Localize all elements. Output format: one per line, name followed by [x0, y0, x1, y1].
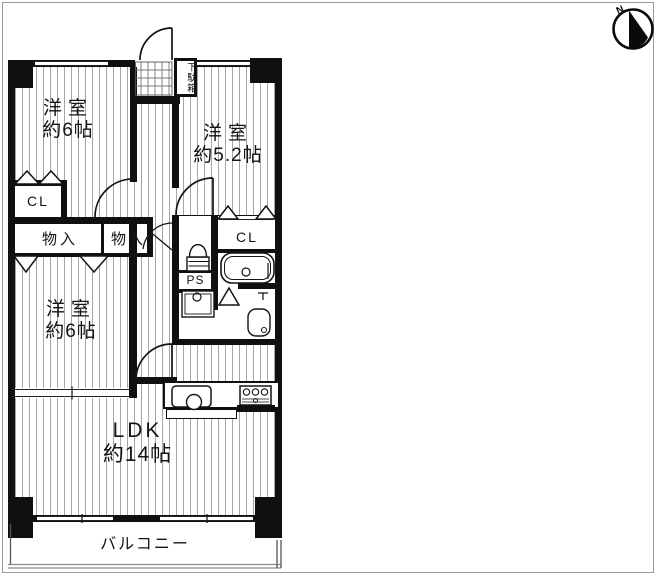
room-label-bedroom-top-right: 洋室 約5.2帖: [176, 123, 280, 167]
wall-segment: [238, 283, 282, 289]
wall-segment: [218, 249, 275, 253]
closet-label-left: CL: [15, 193, 61, 209]
room-name: LDK: [80, 419, 195, 443]
balcony-label: バルコニー: [95, 536, 195, 554]
entrance-step-edge: [133, 96, 180, 104]
room-label-bedroom-top-left: 洋室 約6帖: [16, 98, 120, 142]
wall-segment: [237, 405, 275, 412]
floor-plan-canvas: 洋室 約6帖 洋室 約5.2帖 洋室 約6帖 LDK 約14帖 バルコニー CL…: [0, 0, 656, 575]
wall-segment: [179, 289, 214, 293]
wall-segment: [12, 180, 67, 186]
room-label-ldk: LDK 約14帖: [80, 419, 195, 467]
storage-label-right: 物入: [104, 231, 152, 248]
balcony-window-opening: [37, 516, 113, 521]
storage-label-left: 物入: [20, 231, 100, 248]
room-size: 約5.2帖: [176, 145, 280, 167]
doorway-opening: [179, 216, 211, 222]
room-name: 洋室: [16, 98, 120, 120]
room-size: 約6帖: [19, 321, 123, 343]
kitchen-counter-edge: [166, 409, 237, 419]
closet-label-right: CL: [219, 229, 275, 245]
pipe-space-label: PS: [180, 274, 211, 288]
closet-opening: [218, 216, 275, 222]
sliding-partition-band: [12, 388, 132, 398]
room-size: 約6帖: [16, 120, 120, 142]
wall-segment: [130, 60, 137, 182]
wall-segment: [12, 253, 153, 257]
wall-segment: [211, 222, 218, 310]
balcony-window-opening: [160, 516, 253, 521]
shoe-cabinet-label: 下駄箱: [177, 60, 195, 96]
window-opening: [197, 61, 250, 66]
wall-segment: [172, 339, 282, 345]
room-name: 洋室: [176, 123, 280, 145]
wall-segment: [8, 60, 15, 522]
room-size: 約14帖: [80, 443, 195, 467]
room-name: 洋室: [19, 299, 123, 321]
wall-segment: [172, 215, 179, 345]
wall-segment: [12, 217, 147, 224]
entrance-doorway: [135, 57, 174, 67]
wall-segment: [61, 180, 67, 218]
window-opening: [35, 61, 108, 66]
room-label-bedroom-middle-left: 洋室 約6帖: [19, 299, 123, 343]
